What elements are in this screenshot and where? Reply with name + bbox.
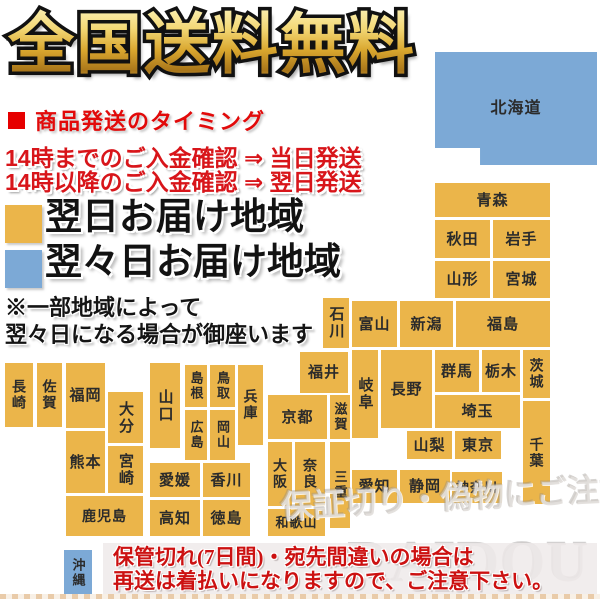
prefecture-gunma: 群馬 bbox=[435, 350, 479, 392]
prefecture-hiroshima: 広島 bbox=[185, 410, 207, 460]
prefecture-miyagi: 宮城 bbox=[493, 261, 550, 298]
prefecture-kumamoto: 熊本 bbox=[66, 431, 105, 493]
prefecture-label: 埼玉 bbox=[461, 404, 493, 419]
prefecture-shimane: 島根 bbox=[185, 365, 207, 407]
notice-line-1: 保管切れ(7日間)・宛先間違いの場合は bbox=[113, 545, 597, 569]
prefecture-label: 新潟 bbox=[410, 317, 442, 332]
prefecture-oita: 大分 bbox=[108, 392, 143, 443]
prefecture-label: 岩手 bbox=[505, 232, 537, 247]
prefecture-label: 山形 bbox=[446, 272, 478, 287]
prefecture-yamagata: 山形 bbox=[435, 261, 490, 298]
prefecture-miyazaki: 宮崎 bbox=[108, 446, 143, 493]
prefecture-niigata: 新潟 bbox=[400, 301, 453, 347]
prefecture-label: 北海道 bbox=[490, 101, 541, 117]
prefecture-label: 愛媛 bbox=[159, 473, 191, 488]
prefecture-label: 京都 bbox=[281, 410, 313, 425]
prefecture-label: 島根 bbox=[190, 371, 203, 401]
prefecture-label: 富山 bbox=[358, 317, 390, 332]
prefecture-label: 茨城 bbox=[530, 358, 544, 390]
prefecture-label: 青森 bbox=[476, 193, 508, 208]
prefecture-yamaguchi: 山口 bbox=[150, 363, 180, 448]
prefecture-label: 高知 bbox=[159, 511, 191, 526]
prefecture-label: 宮城 bbox=[505, 272, 537, 287]
prefecture-hyogo: 兵庫 bbox=[238, 365, 263, 445]
prefecture-label: 福井 bbox=[308, 365, 340, 380]
prefecture-okayama: 岡山 bbox=[210, 410, 235, 460]
prefecture-nagano: 長野 bbox=[381, 350, 432, 428]
prefecture-label: 宮崎 bbox=[118, 453, 133, 487]
notice-line-2: 再送は着払いになりますので、ご注意下さい。 bbox=[113, 569, 597, 593]
prefecture-label: 栃木 bbox=[485, 364, 517, 379]
prefecture-label: 長崎 bbox=[12, 379, 26, 411]
prefecture-hokkaido: 北海道 bbox=[435, 52, 597, 165]
prefecture-fukuoka: 福岡 bbox=[66, 363, 105, 428]
bottom-dashed-strip bbox=[0, 594, 600, 599]
prefecture-nagasaki: 長崎 bbox=[5, 363, 33, 427]
prefecture-saitama: 埼玉 bbox=[435, 395, 520, 428]
prefecture-label: 東京 bbox=[462, 438, 494, 453]
prefecture-label: 熊本 bbox=[69, 455, 101, 470]
prefecture-label: 石川 bbox=[329, 306, 344, 340]
prefecture-label: 長野 bbox=[390, 382, 422, 397]
prefecture-saga: 佐賀 bbox=[37, 363, 62, 427]
prefecture-gifu: 岐阜 bbox=[352, 350, 378, 438]
prefecture-fukushima: 福島 bbox=[456, 301, 550, 347]
prefecture-label: 福岡 bbox=[69, 388, 101, 403]
prefecture-label: 広島 bbox=[190, 420, 203, 450]
prefecture-label: 鹿児島 bbox=[82, 509, 127, 523]
storage-notice-box: 保管切れ(7日間)・宛先間違いの場合は 再送は着払いになりますので、ご注意下さい… bbox=[103, 543, 597, 596]
prefecture-label: 滋賀 bbox=[334, 402, 347, 432]
prefecture-aomori: 青森 bbox=[435, 183, 550, 217]
prefecture-label: 大分 bbox=[118, 401, 133, 435]
prefecture-label: 秋田 bbox=[446, 232, 478, 247]
prefecture-ibaraki: 茨城 bbox=[523, 350, 550, 398]
shipping-info-banner: 全国送料無料 全国送料無料 商品発送のタイミング 14時までのご入金確認 ⇒ 当… bbox=[0, 0, 600, 600]
prefecture-yamanashi: 山梨 bbox=[407, 431, 452, 459]
prefecture-label: 沖縄 bbox=[72, 558, 85, 588]
prefecture-label: 福島 bbox=[487, 317, 519, 332]
prefecture-label: 千葉 bbox=[530, 437, 544, 469]
prefecture-tokyo: 東京 bbox=[455, 431, 501, 459]
prefecture-label: 鳥取 bbox=[216, 371, 229, 401]
prefecture-label: 兵庫 bbox=[244, 389, 258, 421]
prefecture-label: 山口 bbox=[158, 389, 173, 423]
prefecture-iwate: 岩手 bbox=[493, 220, 550, 258]
prefecture-label: 香川 bbox=[210, 473, 242, 488]
prefecture-toyama: 富山 bbox=[352, 301, 397, 347]
prefecture-ishikawa: 石川 bbox=[323, 298, 349, 348]
prefecture-okinawa: 沖縄 bbox=[64, 550, 92, 595]
prefecture-fukui: 福井 bbox=[300, 352, 348, 393]
prefecture-label: 山梨 bbox=[413, 438, 445, 453]
prefecture-tokushima: 徳島 bbox=[203, 500, 250, 536]
prefecture-kochi: 高知 bbox=[150, 500, 200, 536]
prefecture-label: 岐阜 bbox=[358, 377, 373, 411]
prefecture-label: 佐賀 bbox=[43, 379, 57, 411]
prefecture-tottori: 鳥取 bbox=[210, 365, 235, 407]
prefecture-tochigi: 栃木 bbox=[482, 350, 520, 392]
prefecture-kagoshima: 鹿児島 bbox=[66, 496, 143, 536]
prefecture-shiga: 滋賀 bbox=[330, 395, 350, 439]
prefecture-label: 岡山 bbox=[216, 420, 229, 450]
prefecture-kagawa: 香川 bbox=[203, 463, 250, 497]
prefecture-kyoto: 京都 bbox=[268, 395, 327, 439]
prefecture-ehime: 愛媛 bbox=[150, 463, 200, 497]
prefecture-label: 徳島 bbox=[210, 511, 242, 526]
prefecture-label: 群馬 bbox=[441, 364, 473, 379]
prefecture-akita: 秋田 bbox=[435, 220, 490, 258]
